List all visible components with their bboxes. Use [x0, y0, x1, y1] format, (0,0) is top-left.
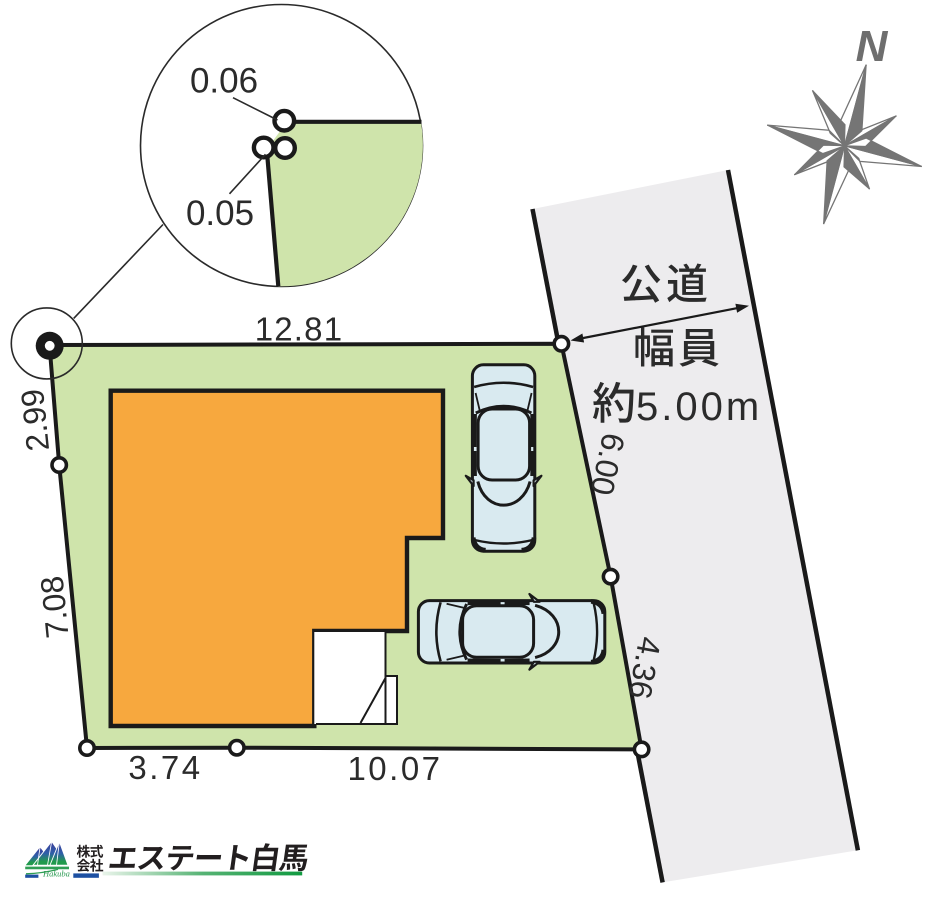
svg-text:12.81: 12.81: [255, 311, 344, 348]
svg-text:5.00m: 5.00m: [636, 385, 762, 429]
svg-text:N: N: [856, 22, 889, 71]
svg-text:0.06: 0.06: [190, 62, 258, 101]
svg-text:7.08: 7.08: [34, 574, 76, 640]
svg-text:0.05: 0.05: [186, 194, 254, 233]
svg-text:3.74: 3.74: [128, 749, 202, 786]
svg-text:2.99: 2.99: [14, 387, 56, 453]
svg-text:Hakuba: Hakuba: [42, 869, 70, 879]
svg-text:10.07: 10.07: [347, 750, 442, 787]
